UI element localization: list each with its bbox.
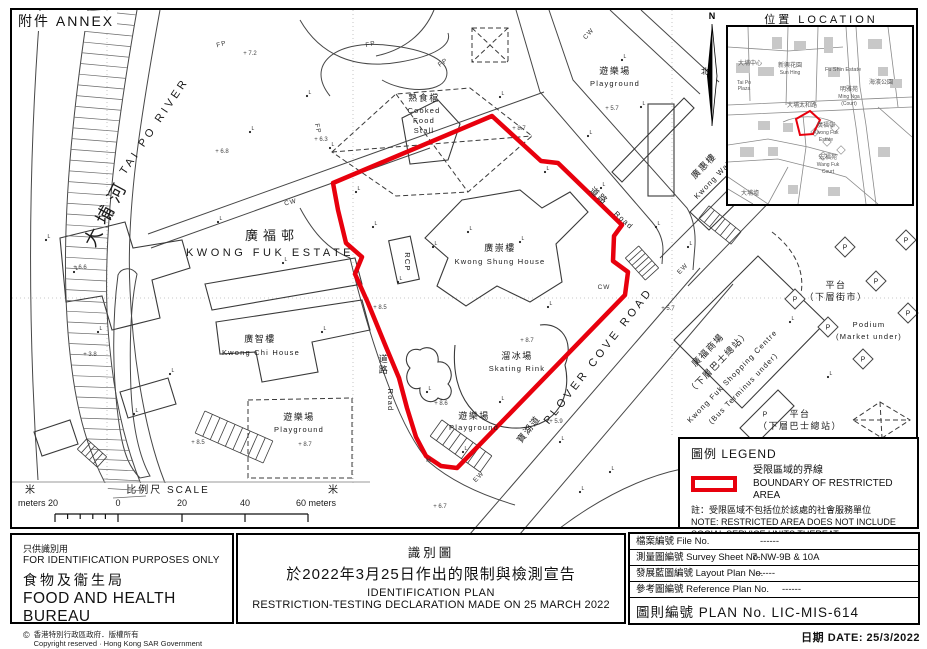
map-annotation: FP	[365, 40, 377, 49]
map-label: Food	[413, 116, 435, 125]
map-label: Podium	[853, 320, 886, 329]
map-label: （下層街市）	[804, 291, 867, 302]
svg-text:L: L	[435, 241, 438, 247]
map-annotation: FP	[313, 123, 322, 135]
map-annotation: CW	[598, 284, 611, 291]
map-label: Playground	[274, 425, 324, 434]
svg-text:L: L	[792, 316, 795, 322]
svg-text:P: P	[793, 297, 798, 304]
lamp-marker: L	[329, 142, 335, 149]
inset-label: Court	[822, 169, 835, 175]
legend-item-en: BOUNDARY OF RESTRICTED AREA	[753, 478, 908, 503]
legend-restricted-swatch	[691, 476, 737, 492]
lamp-marker: L	[544, 166, 550, 173]
legend-note-cn: 註：受限區域不包括位於該處的社會服務單位	[691, 505, 908, 517]
map-label: （下層巴士總站）	[758, 420, 842, 431]
spot-height: + 6.3	[314, 137, 328, 143]
map-label: KWONG FUK ESTATE	[186, 247, 354, 259]
legend-note-en1: NOTE: RESTRICTED AREA DOES NOT INCLUDE	[691, 517, 908, 529]
svg-text:L: L	[112, 212, 115, 218]
map-label: (Market under)	[836, 332, 902, 341]
lamp-marker: L	[640, 101, 646, 108]
inset-streets	[728, 27, 912, 204]
spot-height: + 7.2	[243, 51, 257, 57]
lamp-marker: L	[499, 396, 505, 403]
inset-label: Kwong Fuk	[813, 130, 839, 136]
map-annotation: H	[426, 457, 432, 464]
svg-text:L: L	[582, 486, 585, 492]
map-label: 寶湖道	[514, 413, 542, 445]
layout-plan-row: 發展藍圖編號 Layout Plan No. ------	[630, 566, 918, 582]
lamp-marker: L	[655, 221, 661, 228]
lamp-marker: L	[587, 130, 593, 137]
inset-label: 廣福邨	[817, 121, 835, 129]
survey-sheet-row: 測量圖編號 Survey Sheet No. 7-NW-9B & 10A	[630, 550, 918, 566]
inset-label: Ming Nga	[838, 94, 860, 100]
svg-text:L: L	[550, 301, 553, 307]
annex-label: 附件 ANNEX	[15, 11, 117, 31]
map-label: 熟食檔	[408, 92, 440, 103]
lamp-marker: L	[306, 90, 312, 97]
svg-text:P: P	[843, 245, 848, 252]
svg-text:L: L	[830, 371, 833, 377]
svg-text:L: L	[100, 326, 103, 332]
svg-text:L: L	[603, 182, 606, 188]
legend-item-cn: 受限區域的界線	[753, 465, 908, 478]
scale-40: 40	[240, 498, 250, 508]
svg-text:L: L	[470, 226, 473, 232]
inset-label: 明雅苑	[840, 85, 858, 93]
parking-marker: P	[866, 271, 886, 291]
map-label: Stall	[414, 126, 435, 135]
spot-height: + 6.6	[73, 265, 87, 271]
svg-text:L: L	[220, 216, 223, 222]
spot-height: + 5.7	[605, 106, 619, 112]
date-label: 日期 DATE: 25/3/2022	[628, 629, 920, 645]
title-block: 只供識別用 FOR IDENTIFICATION PURPOSES ONLY 食…	[10, 533, 234, 624]
map-label: 路	[379, 364, 390, 375]
inset-label: 大埔墟	[741, 189, 759, 197]
map-annotation: FP	[437, 57, 449, 69]
scale-title: 比例尺 SCALE	[126, 483, 210, 496]
spot-height: + 6.7	[433, 504, 447, 510]
svg-text:L: L	[324, 326, 327, 332]
lamp-marker: L	[827, 371, 833, 378]
map-label: 廣福邨	[245, 228, 299, 243]
lamp-marker: L	[397, 276, 403, 283]
inset-label: 宏福苑	[819, 153, 837, 161]
map-label: Playground	[590, 79, 640, 88]
svg-text:L: L	[429, 386, 432, 392]
scale-zero: 0	[115, 498, 120, 508]
map-label: 道	[379, 353, 390, 364]
scale-right-label: 60 meters	[296, 498, 337, 508]
scale-cn-right: 米	[328, 483, 338, 496]
use-statement-en: FOR IDENTIFICATION PURPOSES ONLY	[23, 555, 232, 566]
inset-label: 大埔中心	[738, 59, 762, 67]
north-cn-label: 北	[701, 67, 709, 76]
svg-text:L: L	[502, 396, 505, 402]
lamp-marker: L	[321, 326, 327, 333]
legend-title: 圖例 LEGEND	[691, 445, 908, 462]
map-label: 遊樂場	[458, 410, 490, 421]
svg-text:L: L	[375, 221, 378, 227]
spot-height: + 6.8	[215, 149, 229, 155]
lamp-marker: L	[519, 236, 525, 243]
svg-text:L: L	[285, 257, 288, 263]
info-table: 檔案編號 File No. ------ 測量圖編號 Survey Sheet …	[628, 532, 920, 625]
inset-map: 新興花園Sun HingFu Shin Estate大埔中心Tai PoPlaz…	[726, 25, 914, 206]
lamp-marker: L	[547, 301, 553, 308]
kwong-chi-house	[60, 222, 190, 330]
spot-height: + 5.9	[549, 419, 563, 425]
svg-text:L: L	[590, 130, 593, 136]
lamp-marker: L	[687, 241, 693, 248]
parking-marker: P	[818, 317, 838, 337]
svg-text:L: L	[48, 234, 51, 240]
svg-text:P: P	[906, 311, 911, 318]
spot-height: + 5.7	[661, 306, 675, 312]
map-label: Kwong Chi House	[222, 348, 300, 357]
spot-height: + 8.5	[191, 440, 205, 446]
plan-title-block: 識別圖 於2022年3月25日作出的限制與檢測宣告 IDENTIFICATION…	[236, 533, 626, 624]
scale-left-label: meters 20	[18, 498, 58, 508]
plan-title-en2: RESTRICTION-TESTING DECLARATION MADE ON …	[238, 599, 624, 611]
scale-bar: 米 比例尺 SCALE 米 meters 20 0 20 40 60 meter…	[12, 482, 370, 528]
lamp-marker: L	[467, 226, 473, 233]
plan-title-cn2: 於2022年3月25日作出的限制與檢測宣告	[238, 563, 624, 584]
lamp-marker: L	[133, 408, 139, 415]
lamp-marker: L	[621, 54, 627, 61]
lamp-marker: L	[579, 486, 585, 493]
inset-label: (Court)	[841, 101, 857, 107]
svg-text:L: L	[400, 276, 403, 282]
inset-map-canvas: 新興花園Sun HingFu Shin Estate大埔中心Tai PoPlaz…	[728, 27, 912, 204]
dashed-diamond	[853, 402, 910, 438]
lamp-marker: L	[609, 466, 615, 473]
inset-label: Fu Shin Estate	[825, 67, 861, 73]
map-label: RCP	[403, 252, 412, 271]
north-arrow: N 北	[697, 8, 727, 132]
map-label: 溜冰場	[501, 350, 533, 361]
map-label: TAI PO RIVER	[118, 76, 192, 177]
lamp-marker: L	[559, 436, 565, 443]
north-n-label: N	[709, 11, 716, 21]
river-far-bank	[31, 10, 40, 480]
spot-height: + 8.6	[434, 401, 448, 407]
spot-height: + 3.8	[83, 352, 97, 358]
dashed-square	[472, 28, 508, 62]
svg-text:L: L	[332, 142, 335, 148]
svg-text:L: L	[624, 54, 627, 60]
bureau-name-en: FOOD AND HEALTH BUREAU	[23, 590, 232, 626]
svg-text:L: L	[358, 186, 361, 192]
inset-label: Wang Fuk	[817, 162, 840, 168]
parking-marker: P	[785, 289, 805, 309]
map-label: Kwong Shung House	[455, 257, 546, 266]
legend-box: 圖例 LEGEND 受限區域的界線 BOUNDARY OF RESTRICTED…	[678, 437, 919, 529]
lamp-marker: L	[426, 386, 432, 393]
map-label: 遊樂場	[599, 65, 631, 76]
svg-text:P: P	[904, 238, 909, 245]
lamp-marker: L	[45, 234, 51, 241]
svg-text:L: L	[465, 446, 468, 452]
parking-marker: P	[853, 349, 873, 369]
map-annotation: CW	[582, 27, 596, 41]
plan-title-cn1: 識別圖	[238, 542, 624, 561]
svg-text:P: P	[874, 279, 879, 286]
playground-boundary	[248, 398, 352, 478]
inset-label: Plaza	[738, 86, 751, 92]
file-no-row: 檔案編號 File No. ------	[630, 534, 918, 550]
parking-marker: P	[898, 303, 918, 323]
parking-marker: P	[763, 412, 768, 419]
map-label: PLOVER COVE ROAD	[542, 286, 656, 427]
copyright-en: Copyright reserved · Hong Kong SAR Gover…	[34, 639, 202, 648]
svg-text:L: L	[502, 91, 505, 97]
lamp-marker: L	[462, 446, 468, 453]
map-label: 遊樂場	[283, 411, 315, 422]
lamp-marker: L	[600, 182, 606, 189]
lamp-marker: L	[169, 368, 175, 375]
bureau-name-cn: 食物及衞生局	[23, 570, 232, 590]
map-annotation: CW	[284, 198, 298, 208]
reference-plan-row: 參考圖編號 Reference Plan No. ------	[630, 582, 918, 598]
map-label: 廣崇樓	[484, 242, 516, 253]
scale-cn-left: 米	[25, 483, 35, 496]
copyright-icon: ©	[23, 630, 30, 649]
lamp-marker: L	[97, 326, 103, 333]
svg-text:L: L	[522, 236, 525, 242]
lamp-marker: L	[372, 221, 378, 228]
spot-height: + 8.7	[512, 126, 526, 132]
inset-label: Estate	[819, 137, 833, 143]
svg-text:L: L	[562, 436, 565, 442]
parking-marker: P	[835, 237, 855, 257]
svg-text:L: L	[690, 241, 693, 247]
north-arrow-light	[712, 24, 717, 126]
inset-label: 海濱公園	[869, 78, 893, 86]
river	[31, 10, 168, 498]
plan-title-en1: IDENTIFICATION PLAN	[238, 587, 624, 599]
lamp-marker: L	[249, 126, 255, 133]
spot-height: + 8.5	[373, 305, 387, 311]
svg-text:L: L	[136, 408, 139, 414]
plan-no-row: 圖則編號 PLAN No. LIC-MIS-614	[630, 598, 918, 627]
map-annotation: EW	[472, 470, 486, 484]
svg-text:L: L	[547, 166, 550, 172]
svg-text:P: P	[826, 325, 831, 332]
spot-height: + 8.7	[298, 442, 312, 448]
map-label: Road	[386, 389, 395, 412]
svg-text:P: P	[861, 357, 866, 364]
lamp-marker: L	[499, 91, 505, 98]
river-channel	[114, 269, 150, 478]
map-label: 廣智樓	[244, 333, 276, 344]
use-statement-cn: 只供識別用	[23, 542, 232, 555]
svg-text:L: L	[658, 221, 661, 227]
parking-marker: P	[896, 230, 916, 250]
spot-height: + 8.7	[520, 338, 534, 344]
inset-label: 新興花園	[778, 61, 802, 69]
map-label: Playground	[449, 423, 499, 432]
svg-text:L: L	[252, 126, 255, 132]
svg-text:L: L	[612, 466, 615, 472]
svg-text:L: L	[643, 101, 646, 107]
svg-text:L: L	[309, 90, 312, 96]
map-label: Skating Rink	[489, 364, 546, 373]
scale-20: 20	[177, 498, 187, 508]
map-label: 平台	[825, 279, 846, 290]
lamp-marker: L	[217, 216, 223, 223]
map-label: Cooked	[407, 106, 440, 115]
map-annotation: FP	[216, 40, 228, 49]
lamp-marker: L	[355, 186, 361, 193]
inset-label: Sun Hing	[780, 70, 801, 76]
inset-label: 大埔太和路	[787, 101, 817, 109]
map-annotation: EW	[676, 262, 690, 276]
svg-text:P: P	[763, 412, 768, 419]
lamp-marker: L	[789, 316, 795, 323]
copyright-cn: 香港特別行政區政府．版權所有	[34, 630, 202, 639]
svg-text:L: L	[172, 368, 175, 374]
map-label: 平台	[789, 408, 810, 419]
